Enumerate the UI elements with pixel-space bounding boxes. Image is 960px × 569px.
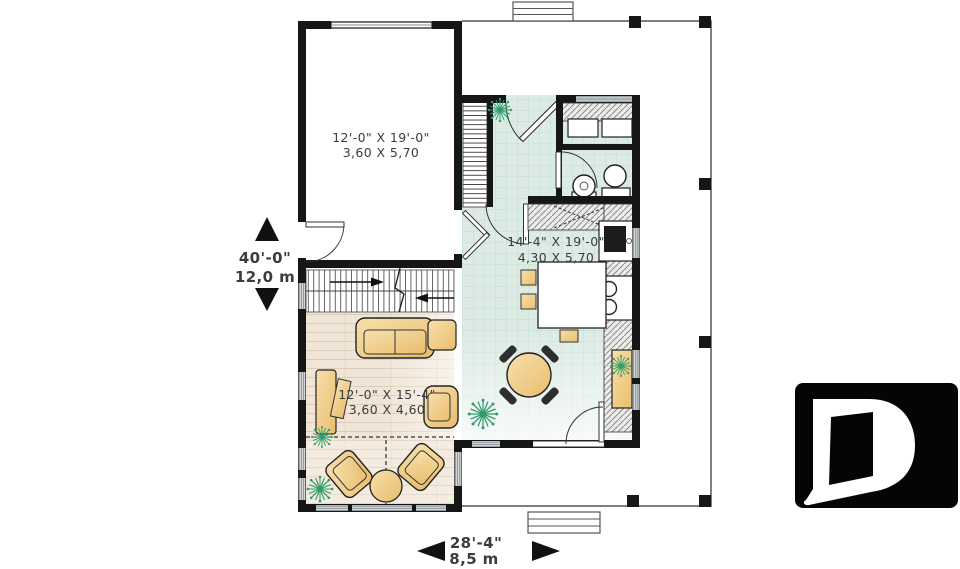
sofa — [356, 318, 434, 358]
door-opening — [533, 441, 604, 447]
kitchen-size-imperial: 14'-4" X 19'-0" — [507, 234, 605, 249]
sunroom-window-band — [316, 505, 446, 511]
dining-window — [633, 350, 640, 378]
right-arrow-icon — [532, 541, 560, 561]
island-stool — [521, 270, 536, 285]
laundry-sink — [568, 119, 598, 137]
island-stool — [521, 294, 536, 309]
height-metric: 12,0 m — [235, 268, 295, 286]
left-arrow-icon — [417, 541, 445, 561]
garage-size-imperial: 12'-0" X 19'-0" — [332, 130, 430, 145]
plant-icon — [468, 399, 499, 430]
plant-icon — [307, 476, 334, 503]
kitchen-counter-top — [528, 204, 610, 230]
living-window — [299, 372, 306, 400]
garage-window-band — [331, 22, 432, 28]
dimension-vertical: 40'-0" 12,0 m — [235, 217, 295, 311]
sunroom-window — [455, 452, 462, 486]
kitchen-top-wall — [528, 196, 640, 204]
island-stool — [560, 330, 578, 342]
height-imperial: 40'-0" — [239, 249, 291, 267]
hall-stairs — [306, 268, 454, 312]
plant-icon — [311, 426, 333, 448]
side-table — [370, 470, 402, 502]
basement-stairs — [463, 100, 493, 207]
dining-window — [633, 384, 640, 410]
width-metric: 8,5 m — [449, 550, 498, 568]
laundry-counter — [562, 103, 636, 121]
sunroom-window — [299, 448, 306, 470]
living-window — [299, 283, 306, 309]
garage-size-metric: 3,60 X 5,70 — [343, 145, 420, 160]
laundry-appliance — [602, 119, 632, 137]
laundry-window — [576, 96, 632, 102]
porch-steps-top — [513, 2, 573, 21]
up-arrow-icon — [255, 217, 279, 241]
dimension-horizontal: 28'-4" 8,5 m — [417, 534, 560, 568]
sunroom-window — [299, 478, 306, 500]
garage-side-door — [306, 222, 344, 262]
plant-icon — [610, 355, 632, 377]
laundry-wall — [556, 95, 563, 144]
living-left-wall — [298, 268, 306, 440]
ottoman — [428, 320, 456, 350]
dining-table-set — [498, 344, 560, 406]
bottom-window — [472, 441, 500, 447]
floor-plan-drawing: 12'-0" X 19'-0" 3,60 X 5,70 — [0, 0, 960, 569]
house-right-wall — [632, 95, 640, 448]
living-size-imperial: 12'-0" X 15'-4" — [338, 387, 436, 402]
porch-steps-bottom — [528, 512, 600, 533]
floor-plan-page: 12'-0" X 19'-0" 3,60 X 5,70 — [0, 0, 960, 569]
kitchen-window — [633, 228, 640, 258]
living-size-metric: 3,60 X 4,60 — [349, 402, 426, 417]
kitchen-size-metric: 4,30 X 5,70 — [518, 250, 595, 265]
d-logo-icon: D — [795, 383, 958, 508]
dining-table — [507, 353, 551, 397]
down-arrow-icon — [255, 288, 279, 311]
garage: 12'-0" X 19'-0" 3,60 X 5,70 — [298, 21, 462, 268]
plant-icon — [488, 98, 512, 122]
